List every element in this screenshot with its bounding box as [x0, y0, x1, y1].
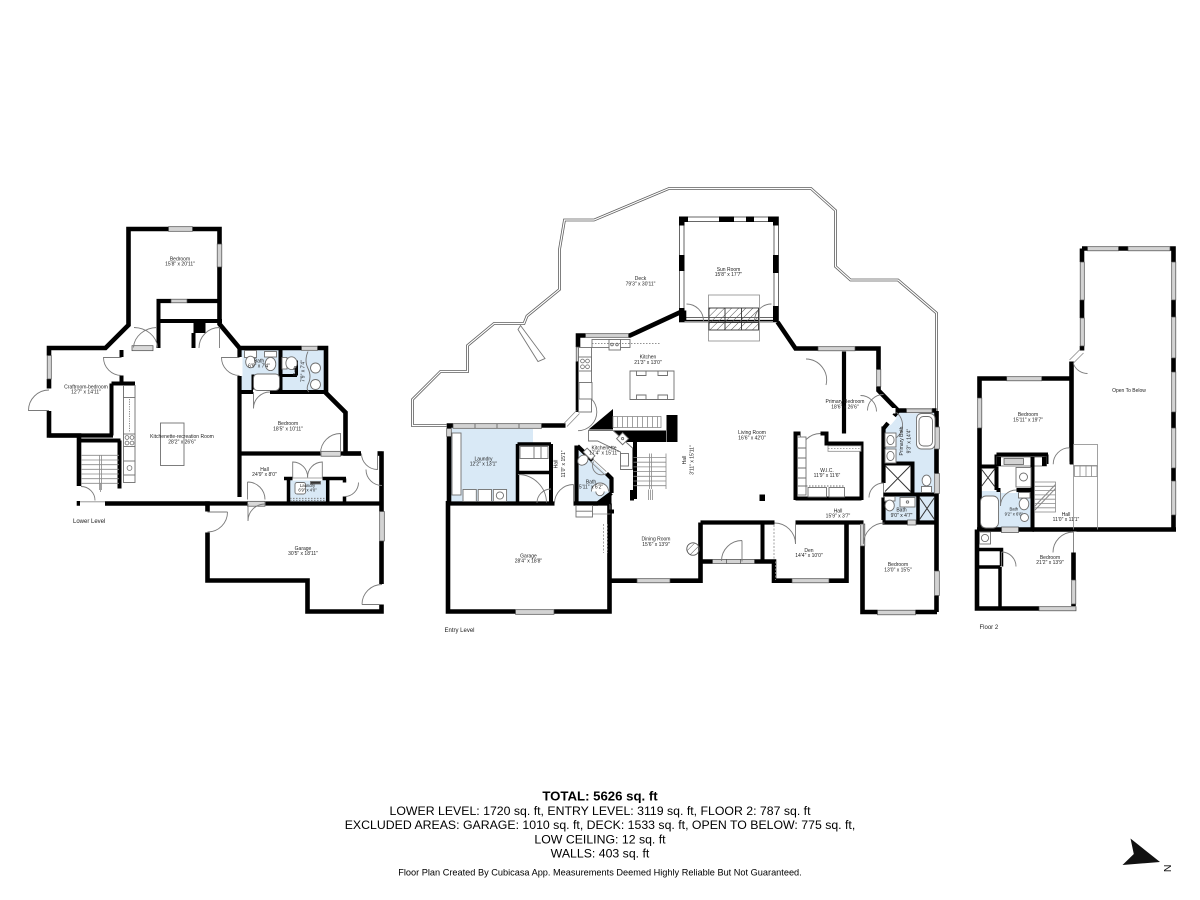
svg-text:5'11" x 6'2": 5'11" x 6'2": [579, 485, 603, 491]
svg-text:28'2" x 26'6": 28'2" x 26'6": [168, 439, 196, 445]
svg-text:LOW CEILING: 12 sq. ft: LOW CEILING: 12 sq. ft: [534, 832, 666, 846]
svg-text:28'4" x 18'8": 28'4" x 18'8": [515, 559, 543, 565]
svg-text:6'9" x 4'0": 6'9" x 4'0": [298, 487, 317, 492]
svg-text:11'9" x 11'6": 11'9" x 11'6": [814, 473, 841, 479]
svg-text:30'5" x 18'11": 30'5" x 18'11": [288, 551, 318, 557]
svg-text:Open To Below: Open To Below: [1112, 388, 1146, 394]
svg-text:11'0" x 15'1": 11'0" x 15'1": [561, 450, 567, 477]
svg-text:15'11" x 19'7": 15'11" x 19'7": [1013, 418, 1043, 424]
svg-text:Bath: Bath: [293, 366, 299, 377]
svg-text:LOWER LEVEL: 1720 sq. ft, ENTR: LOWER LEVEL: 1720 sq. ft, ENTRY LEVEL: 3…: [389, 804, 811, 818]
svg-text:7'9" x 7'4": 7'9" x 7'4": [301, 360, 307, 382]
svg-text:Entry Level: Entry Level: [445, 628, 475, 634]
svg-text:21'2" x 13'9": 21'2" x 13'9": [1036, 560, 1064, 566]
svg-text:9'3" x 14'4": 9'3" x 14'4": [907, 428, 913, 453]
svg-text:12'7" x 14'11": 12'7" x 14'11": [71, 390, 101, 396]
svg-text:11'0" x 11'1": 11'0" x 11'1": [1053, 517, 1080, 523]
svg-text:15'6" x 13'9": 15'6" x 13'9": [642, 542, 670, 548]
svg-text:WALLS: 403 sq. ft: WALLS: 403 sq. ft: [551, 847, 650, 861]
svg-text:Floor 2: Floor 2: [980, 625, 999, 631]
svg-text:14'4" x 10'0": 14'4" x 10'0": [795, 553, 823, 559]
svg-text:Lower Level: Lower Level: [73, 519, 105, 525]
svg-text:18'6" x 26'6": 18'6" x 26'6": [831, 404, 859, 410]
svg-text:Hall: Hall: [682, 456, 688, 465]
svg-text:79'3" x 30'11": 79'3" x 30'11": [626, 282, 656, 288]
svg-text:15'8" x 20'11": 15'8" x 20'11": [165, 262, 195, 268]
svg-text:TOTAL: 5626 sq. ft: TOTAL: 5626 sq. ft: [542, 789, 658, 804]
svg-text:9'0" x 4'7": 9'0" x 4'7": [891, 513, 913, 519]
svg-text:15'9" x 3'7": 15'9" x 3'7": [826, 514, 851, 520]
svg-text:13'0" x 15'5": 13'0" x 15'5": [884, 568, 912, 574]
svg-text:16'6" x 42'0": 16'6" x 42'0": [738, 435, 766, 441]
svg-text:12'2" x 13'1": 12'2" x 13'1": [470, 462, 498, 468]
svg-text:18'5" x 10'11": 18'5" x 10'11": [273, 426, 303, 432]
svg-text:17'4" x 15'11": 17'4" x 15'11": [589, 451, 619, 457]
svg-text:Primary Bath: Primary Bath: [899, 426, 905, 455]
svg-text:6'9" x 7'4": 6'9" x 7'4": [248, 364, 270, 370]
svg-text:3'11" x 15'11": 3'11" x 15'11": [690, 445, 696, 475]
svg-text:9'2" x 6'8": 9'2" x 6'8": [1005, 511, 1024, 516]
svg-text:21'3" x 13'0": 21'3" x 13'0": [634, 360, 662, 366]
svg-text:24'9" x 8'0": 24'9" x 8'0": [252, 472, 277, 478]
svg-text:EXCLUDED AREAS: GARAGE: 1010 s: EXCLUDED AREAS: GARAGE: 1010 sq. ft, DEC…: [345, 818, 856, 832]
svg-text:Floor Plan Created By Cubicasa: Floor Plan Created By Cubicasa App. Meas…: [398, 868, 801, 878]
svg-text:Hall: Hall: [554, 460, 560, 469]
svg-text:N: N: [1161, 865, 1173, 873]
svg-text:15'8" x 17'7": 15'8" x 17'7": [715, 272, 743, 278]
